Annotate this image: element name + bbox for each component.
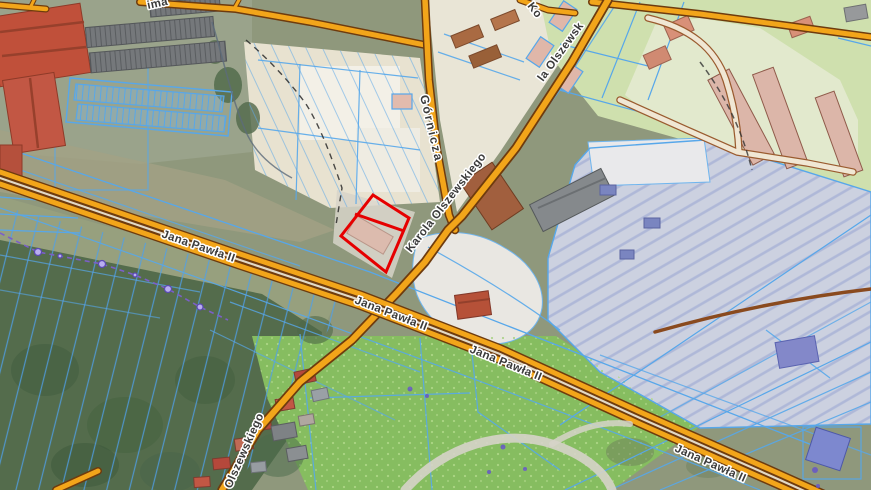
building xyxy=(454,291,491,319)
map-canvas[interactable]: ima Ko Górnicza Karola Olszewskiego la O… xyxy=(0,0,871,490)
map-viewport[interactable]: ima Ko Górnicza Karola Olszewskiego la O… xyxy=(0,0,871,490)
